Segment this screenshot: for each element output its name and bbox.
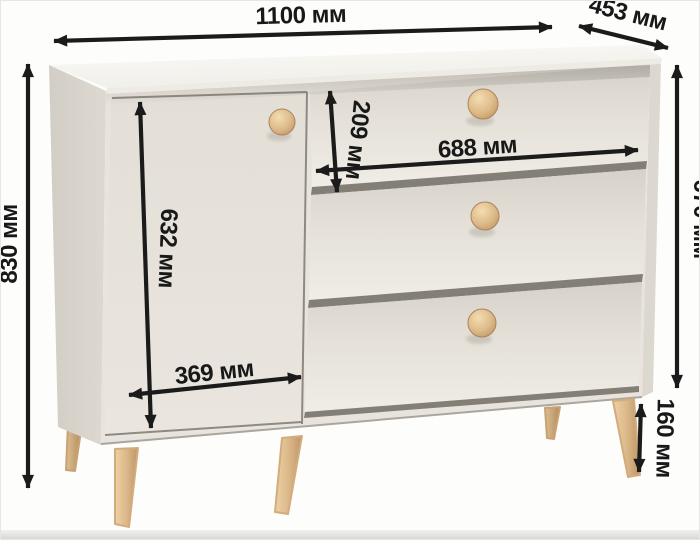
body-height-label: 670 мм xyxy=(688,179,700,258)
drawer-2-knob xyxy=(471,202,499,230)
floor-edge xyxy=(1,530,700,540)
drawer-1-knob xyxy=(468,89,498,119)
overall-height-label: 830 мм xyxy=(1,204,23,283)
door-height-label: 632 мм xyxy=(153,208,183,288)
leg-height-label: 160 мм xyxy=(650,398,678,478)
overall-width-label: 1100 мм xyxy=(255,1,346,30)
drawer-3-knob xyxy=(468,309,496,337)
door-knob xyxy=(269,109,295,135)
leg-height-arrow xyxy=(639,404,641,472)
dimension-diagram-canvas: 1100 мм 453 мм 830 мм 670 мм 632 мм 209 … xyxy=(1,1,700,540)
cabinet-left-side xyxy=(49,65,106,445)
drawer-width-label: 688 мм xyxy=(437,131,518,163)
product-dimensions-image: 1100 мм 453 мм 830 мм 670 мм 632 мм 209 … xyxy=(0,0,700,540)
